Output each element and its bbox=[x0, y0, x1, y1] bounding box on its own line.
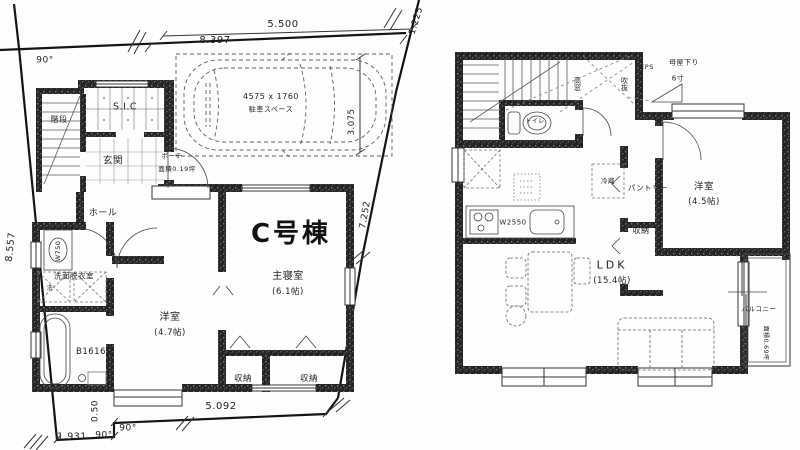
label-high-window: 高窓 bbox=[574, 77, 581, 91]
label-bedroom-2f: 洋室 bbox=[694, 182, 714, 192]
label-bedroom-2f-size: (4.5帖) bbox=[688, 198, 720, 207]
label-closet-left: 収納 bbox=[234, 375, 252, 384]
dim-top-outer: 8.397 bbox=[199, 36, 230, 46]
label-roof-pitch: 6寸 bbox=[672, 76, 684, 83]
label-porch: ポーチ bbox=[162, 153, 183, 160]
angle-bottom-2: 90° bbox=[119, 425, 136, 434]
label-stairs: 階段 bbox=[51, 116, 68, 124]
label-kitchen: W2550 bbox=[499, 220, 526, 227]
label-washer: 洗 bbox=[47, 286, 54, 292]
label-closet-2f: 収納 bbox=[633, 227, 650, 235]
label-eps: EPS bbox=[640, 64, 654, 71]
label-ldk: LDK bbox=[597, 260, 628, 271]
dim-right-upper: 3.075 bbox=[348, 109, 357, 136]
label-porch-area: 面積0.19坪 bbox=[158, 166, 195, 173]
dim-bottom-step: 0.50 bbox=[92, 400, 101, 422]
label-parking-size: 4575 x 1760 bbox=[243, 93, 299, 101]
floorplan-page: 5.500 8.397 1.225 90° 8.557 3.075 7.252 … bbox=[0, 0, 800, 450]
label-master-size: (6.1帖) bbox=[272, 288, 304, 297]
label-toilet: トイレ bbox=[525, 119, 545, 125]
label-master: 主寝室 bbox=[272, 272, 304, 282]
label-void: 吹抜 bbox=[621, 77, 628, 91]
label-bedroom2: 洋室 bbox=[160, 313, 181, 323]
label-bath: B1616 bbox=[76, 348, 106, 357]
dim-top-inner: 5.500 bbox=[267, 20, 298, 30]
label-ldk-size: (15.4帖) bbox=[593, 277, 631, 286]
site-boundary bbox=[0, 0, 419, 440]
label-sic: S.I.C bbox=[113, 102, 137, 112]
label-parking: 駐車スペース bbox=[249, 107, 293, 114]
label-balcony-area: 面積0.69坪 bbox=[762, 326, 768, 361]
angle-top-left: 90° bbox=[36, 57, 53, 66]
label-vanity: W750 bbox=[55, 241, 62, 262]
label-washroom: 洗面脱衣室 bbox=[54, 272, 94, 280]
label-roof: 母屋下り bbox=[669, 60, 699, 67]
label-pantry: パントリー bbox=[628, 184, 668, 192]
label-balcony: バルコニー bbox=[742, 306, 777, 313]
label-closet-right: 収納 bbox=[300, 375, 318, 384]
angle-bottom-1: 90° bbox=[95, 432, 112, 441]
label-bedroom2-size: (4.7帖) bbox=[154, 329, 186, 338]
floor1-fixtures bbox=[38, 53, 392, 388]
label-hall: ホール bbox=[89, 210, 118, 219]
plan-title: C号棟 bbox=[251, 221, 331, 247]
dim-bottom: 5.092 bbox=[205, 402, 236, 412]
label-entrance: 玄関 bbox=[103, 156, 123, 166]
floorplan-drawing bbox=[0, 0, 800, 450]
label-fridge: 冷蔵 bbox=[601, 178, 615, 185]
dim-bottom-left: 1.931 bbox=[57, 432, 87, 442]
